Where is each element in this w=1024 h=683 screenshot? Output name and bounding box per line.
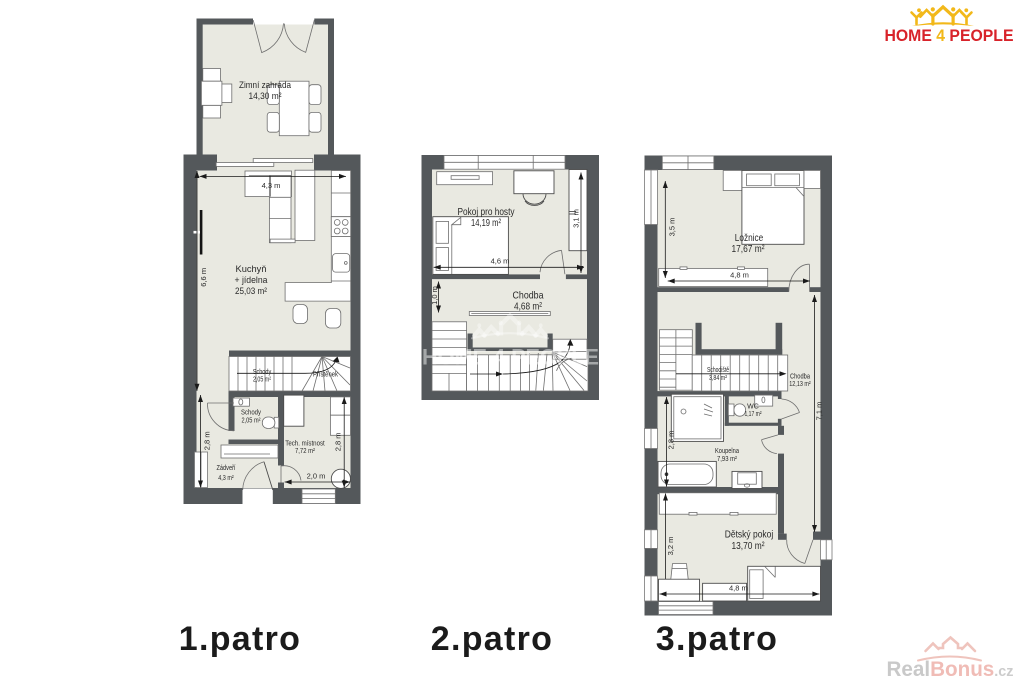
svg-text:4,6 m: 4,6 m [491, 257, 510, 266]
svg-text:4,8 m: 4,8 m [729, 584, 748, 593]
svg-text:Kuchyň: Kuchyň [236, 264, 267, 275]
svg-text:1,0 m: 1,0 m [430, 286, 439, 305]
svg-text:3,2 m: 3,2 m [666, 537, 675, 556]
svg-text:Schodiště: Schodiště [707, 367, 729, 374]
svg-text:7,72 m²: 7,72 m² [295, 446, 315, 455]
svg-text:3,84 m²: 3,84 m² [709, 375, 728, 382]
svg-text:Zádveří: Zádveří [217, 463, 237, 472]
svg-text:4,3 m²: 4,3 m² [218, 473, 234, 482]
svg-text:4,68 m²: 4,68 m² [514, 301, 542, 313]
svg-text:3,1 m: 3,1 m [572, 209, 581, 228]
svg-text:13,70 m²: 13,70 m² [732, 540, 765, 552]
svg-text:2,8 m: 2,8 m [667, 431, 676, 450]
svg-text:HOME 4 PEOPLE: HOME 4 PEOPLE [422, 345, 599, 370]
svg-text:1,17 m²: 1,17 m² [745, 411, 762, 418]
svg-text:Zimní zahrada: Zimní zahrada [239, 80, 292, 91]
svg-text:HOME 4 PEOPLE: HOME 4 PEOPLE [885, 27, 1014, 45]
svg-text:14,30 m²: 14,30 m² [249, 91, 282, 102]
svg-text:+ jídelna: + jídelna [235, 275, 269, 286]
svg-text:Přístěnek: Přístěnek [313, 372, 338, 379]
svg-text:2,8 m: 2,8 m [334, 433, 343, 452]
svg-text:7,1 m: 7,1 m [815, 402, 824, 421]
svg-text:2,0 m: 2,0 m [307, 472, 326, 481]
svg-text:1.patro: 1.patro [179, 620, 301, 658]
svg-text:2,8 m: 2,8 m [203, 431, 212, 450]
svg-text:3,5 m: 3,5 m [668, 218, 677, 237]
svg-text:WC: WC [747, 404, 759, 411]
svg-text:17,67 m²: 17,67 m² [732, 243, 765, 255]
svg-text:2,05 m²: 2,05 m² [242, 418, 262, 425]
svg-text:Schody: Schody [253, 369, 272, 376]
svg-text:2.patro: 2.patro [431, 620, 553, 658]
svg-text:25,03 m²: 25,03 m² [235, 286, 267, 297]
svg-text:Chodba: Chodba [790, 374, 810, 381]
svg-text:12,13 m²: 12,13 m² [789, 381, 811, 388]
svg-text:Dětský pokoj: Dětský pokoj [725, 529, 774, 541]
svg-text:3.patro: 3.patro [656, 620, 778, 658]
svg-text:6,6 m: 6,6 m [199, 268, 208, 287]
svg-text:4,8 m: 4,8 m [730, 271, 749, 280]
svg-text:7,93 m²: 7,93 m² [717, 456, 738, 463]
svg-text:Koupelna: Koupelna [715, 448, 739, 455]
svg-text:14,19 m²: 14,19 m² [471, 217, 501, 229]
svg-text:2,05 m²: 2,05 m² [253, 377, 272, 384]
svg-text:Schody: Schody [241, 410, 261, 417]
svg-text:4,3 m: 4,3 m [262, 181, 281, 190]
